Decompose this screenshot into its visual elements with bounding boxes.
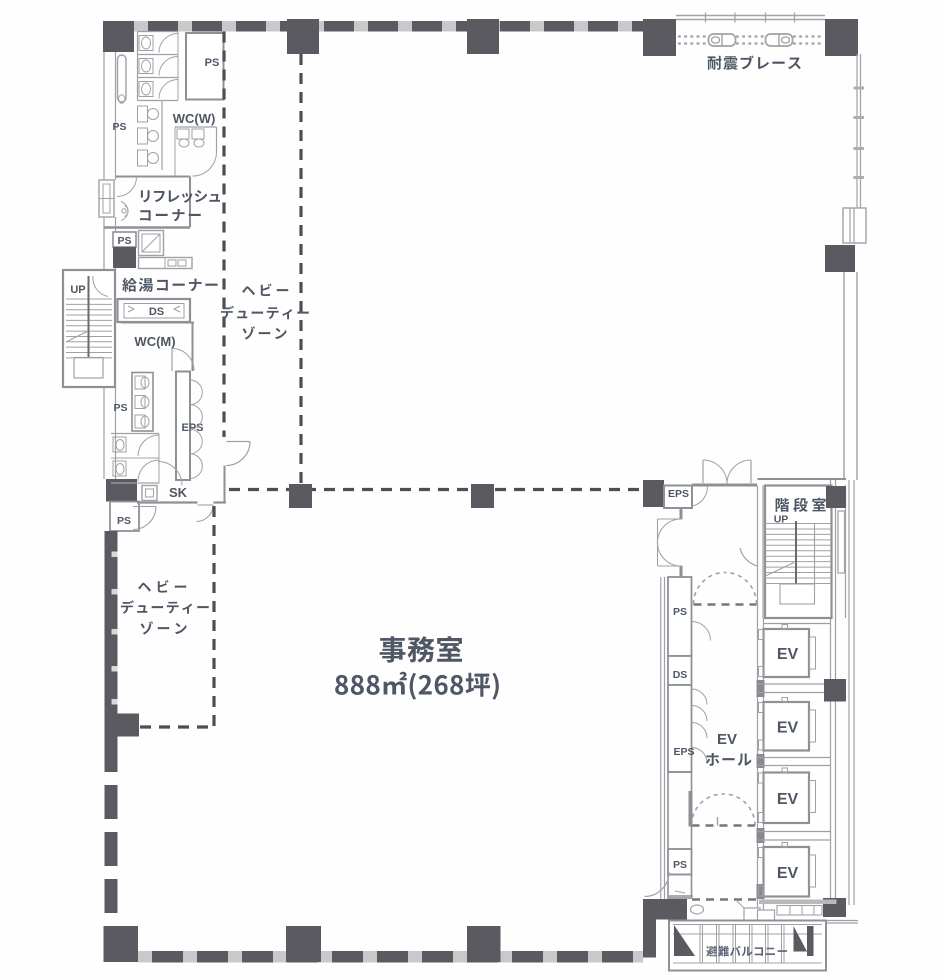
svg-text:DS: DS [673,669,688,681]
svg-text:PS: PS [205,57,220,69]
svg-text:EV: EV [777,865,799,882]
svg-text:PS: PS [673,859,687,871]
svg-text:EV: EV [777,791,799,808]
svg-text:PS: PS [673,606,687,618]
svg-text:EV: EV [717,731,737,748]
svg-text:PS: PS [113,402,127,414]
svg-text:PS: PS [117,515,131,527]
svg-text:WC(W): WC(W) [173,111,216,126]
svg-text:EV: EV [777,646,799,663]
svg-text:PS: PS [112,121,126,133]
svg-text:EPS: EPS [673,746,694,758]
svg-text:WC(M): WC(M) [134,334,175,349]
svg-text:PS: PS [117,235,131,247]
svg-text:EV: EV [777,719,799,736]
svg-text:SK: SK [169,485,188,500]
svg-text:DS: DS [149,306,164,318]
svg-text:UP: UP [70,284,85,296]
svg-text:EPS: EPS [668,488,689,500]
